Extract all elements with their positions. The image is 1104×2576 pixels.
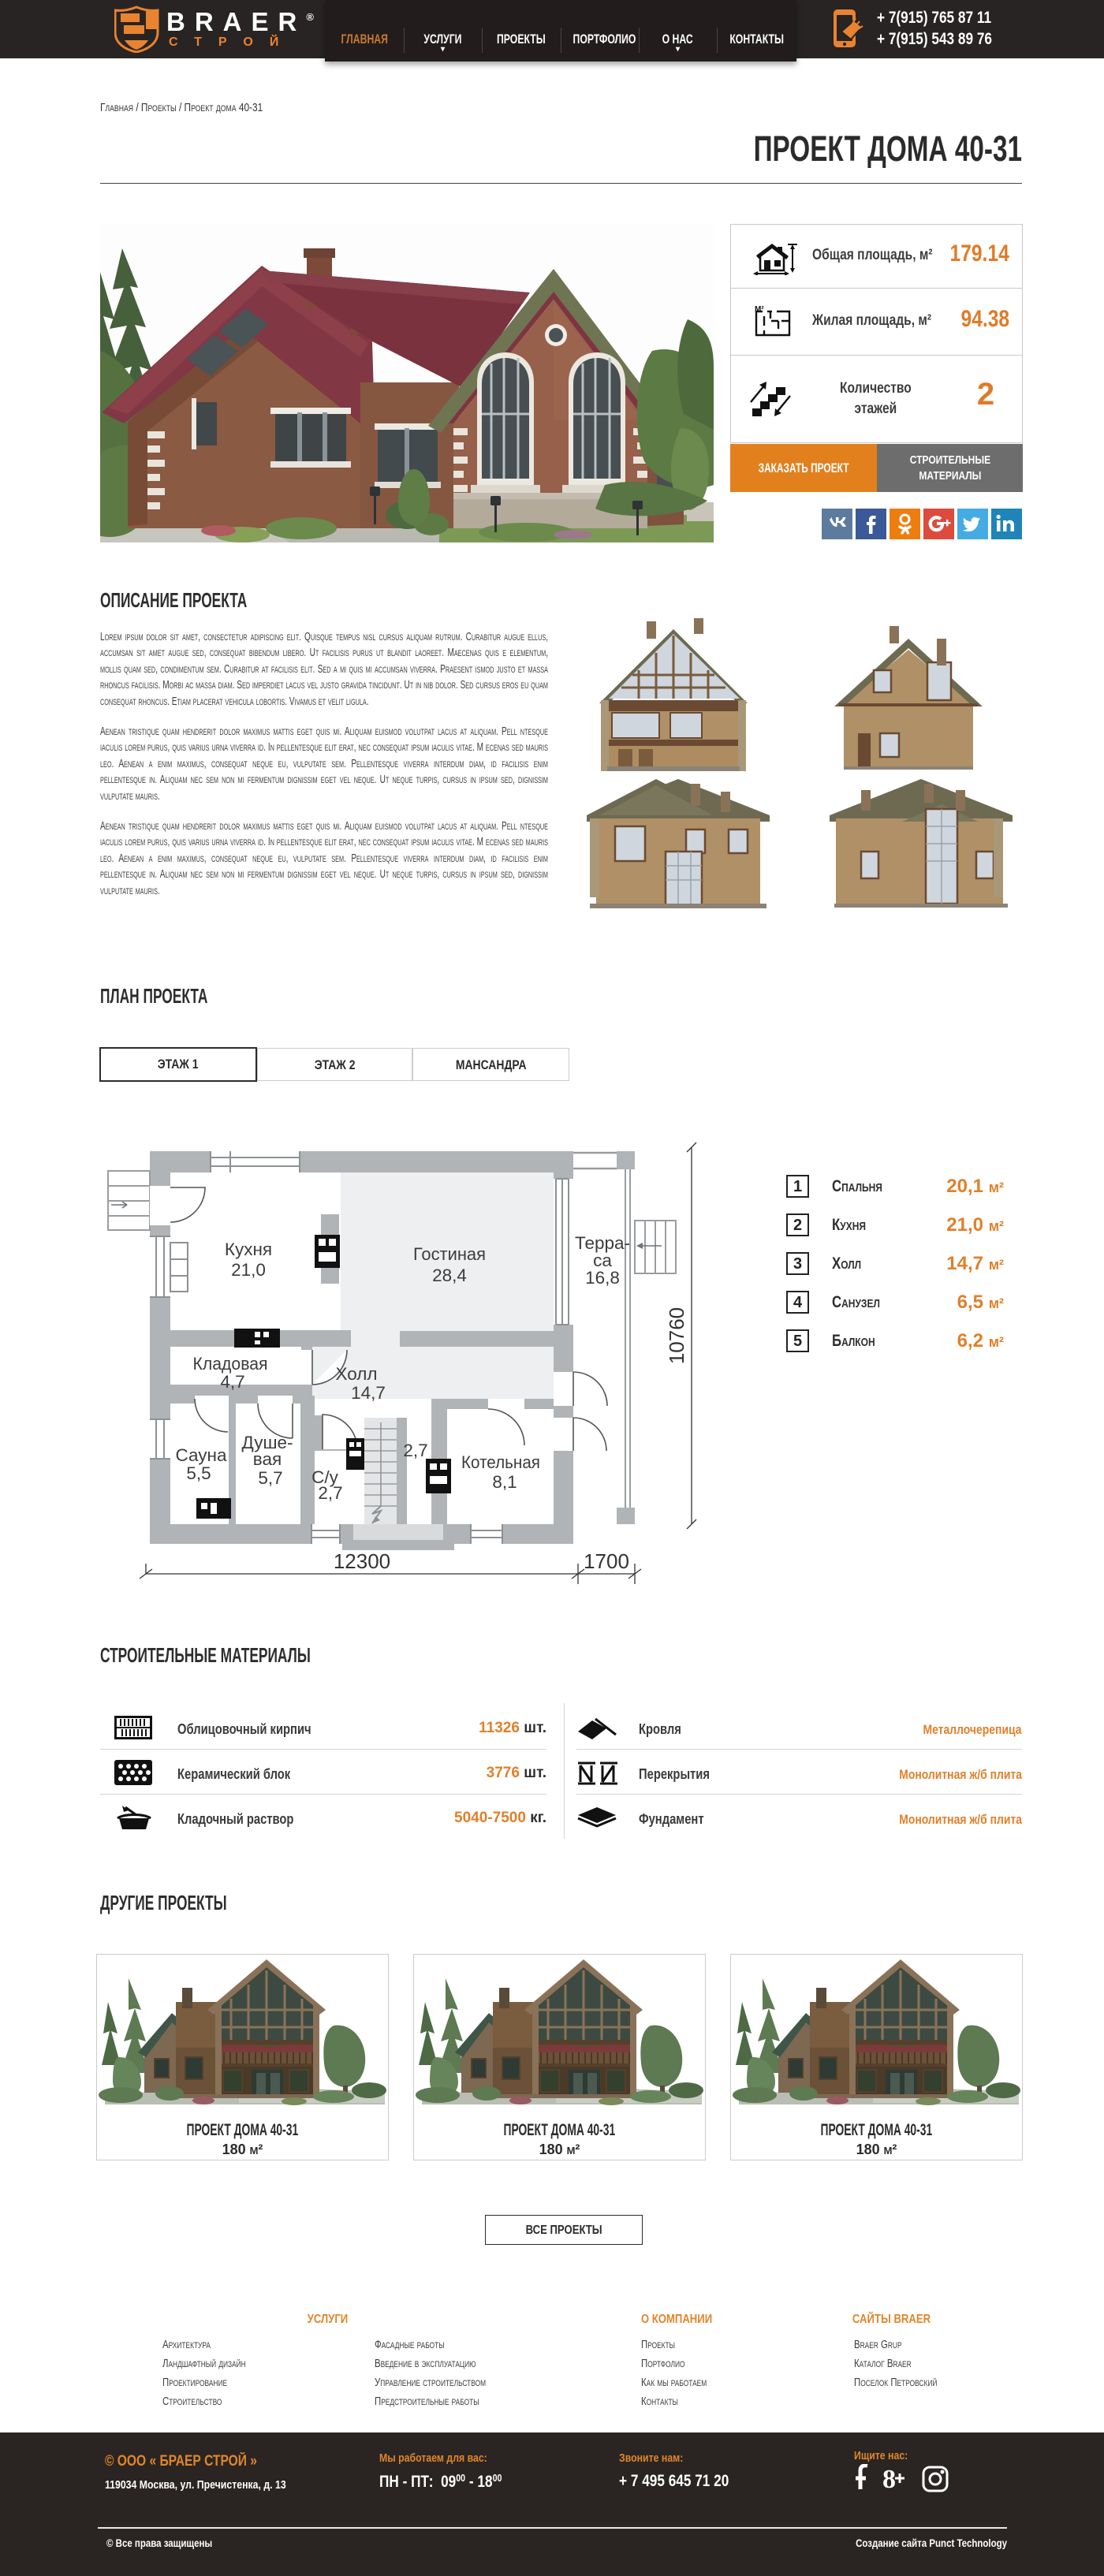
svg-text:Котельная: Котельная bbox=[461, 1452, 540, 1472]
svg-text:1700: 1700 bbox=[584, 1549, 629, 1573]
svg-text:5,7: 5,7 bbox=[258, 1468, 282, 1488]
svg-text:28,4: 28,4 bbox=[432, 1266, 467, 1285]
svg-text:12300: 12300 bbox=[334, 1549, 390, 1573]
svg-text:Гостиная: Гостиная bbox=[413, 1244, 486, 1264]
svg-text:21,0: 21,0 bbox=[231, 1260, 266, 1280]
svg-text:8,1: 8,1 bbox=[492, 1472, 517, 1492]
svg-text:Холл: Холл bbox=[335, 1364, 377, 1384]
svg-text:Кладовая: Кладовая bbox=[193, 1354, 268, 1374]
svg-text:10760: 10760 bbox=[665, 1307, 688, 1364]
svg-text:2,7: 2,7 bbox=[318, 1483, 342, 1503]
svg-text:Сауна: Сауна bbox=[176, 1445, 227, 1465]
svg-text:М²: М² bbox=[755, 305, 764, 314]
svg-text:8: 8 bbox=[882, 2465, 896, 2492]
svg-text:4,7: 4,7 bbox=[220, 1372, 244, 1392]
svg-text:5,5: 5,5 bbox=[186, 1463, 211, 1483]
svg-text:14,7: 14,7 bbox=[351, 1383, 386, 1403]
svg-text:вая: вая bbox=[253, 1449, 282, 1469]
svg-text:16,8: 16,8 bbox=[585, 1268, 620, 1288]
svg-text:2,7: 2,7 bbox=[403, 1441, 427, 1460]
svg-text:Кухня: Кухня bbox=[225, 1240, 272, 1259]
